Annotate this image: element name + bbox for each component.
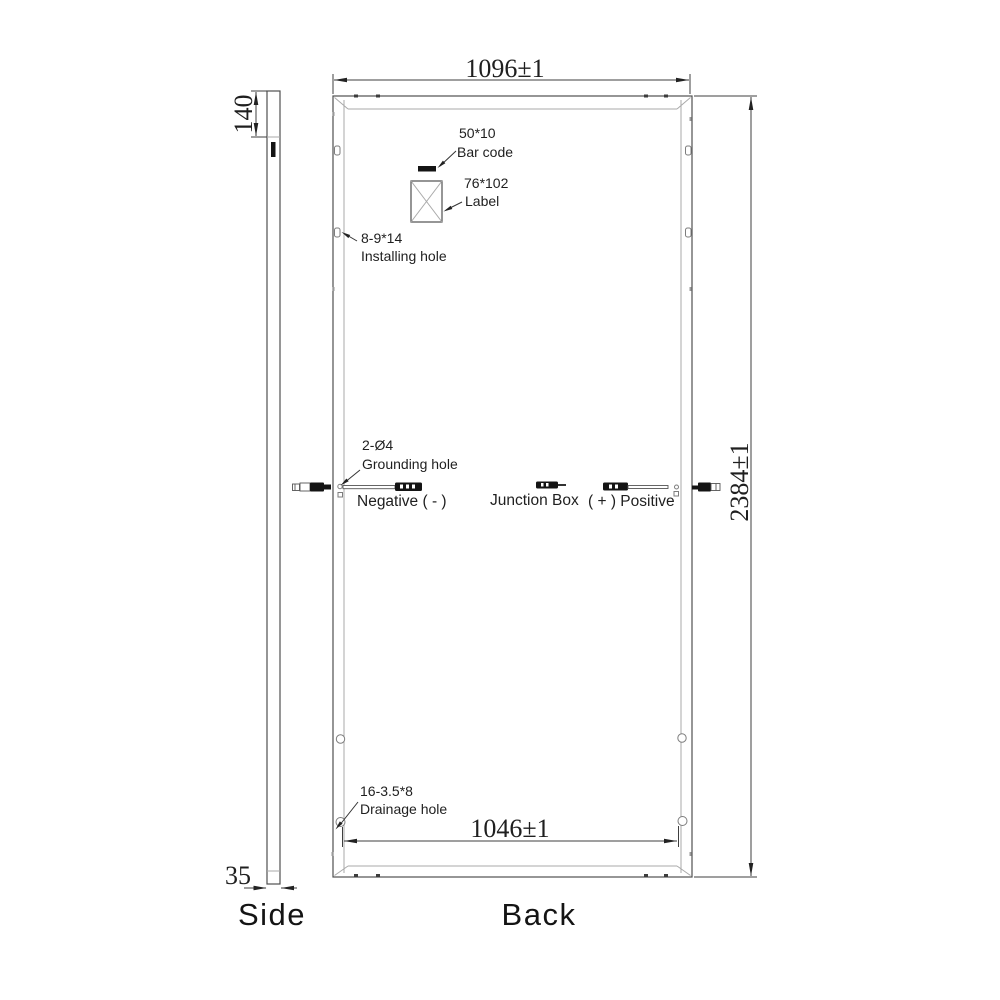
drainage-size-text: 16-3.5*8 — [360, 783, 413, 799]
grounding-hole-left — [338, 484, 343, 497]
mount-width-dimension: 1046±1 — [343, 814, 679, 847]
side-edge-tick-marks — [332, 112, 692, 856]
side-thickness-dimension: 35 — [225, 861, 297, 890]
label-size-text: 76*102 — [464, 175, 509, 191]
cable-connector-right — [603, 483, 628, 491]
height-dim-text: 2384±1 — [725, 442, 754, 521]
back-view: 1096±1 2384±1 1046±1 — [293, 54, 758, 932]
side-view-title: Side — [238, 897, 306, 932]
side-top-offset-dimension: 140 — [229, 91, 267, 137]
positive-label-text: ( + ) Positive — [588, 493, 675, 510]
negative-cable — [343, 486, 395, 489]
installing-size-text: 8-9*14 — [361, 230, 402, 246]
side-profile-bar — [267, 91, 280, 884]
cable-connector-left — [395, 483, 422, 492]
top-width-dimension: 1096±1 — [333, 54, 690, 94]
side-mounting-hole-mark — [271, 142, 276, 157]
grounding-size-text: 2-Ø4 — [362, 437, 393, 453]
negative-connector-icon — [293, 483, 332, 492]
side-view: 140 35 Side — [225, 91, 306, 932]
cable-connector-middle — [536, 482, 566, 489]
side-thickness-dim-text: 35 — [225, 861, 251, 890]
drainage-name-text: Drainage hole — [360, 801, 447, 817]
mount-width-dim-text: 1046±1 — [470, 814, 549, 843]
solar-panel-dimension-drawing: 140 35 Side — [0, 0, 1000, 1000]
barcode-size-text: 50*10 — [459, 125, 496, 141]
technical-drawing-page: 140 35 Side — [0, 0, 1000, 1000]
barcode-name-text: Bar code — [457, 144, 513, 160]
positive-cable — [628, 486, 668, 489]
back-view-title: Back — [502, 897, 577, 932]
positive-connector-icon — [692, 483, 720, 492]
installing-name-text: Installing hole — [361, 248, 447, 264]
negative-label-text: Negative ( - ) — [357, 493, 447, 510]
label-box — [411, 181, 442, 222]
grounding-hole-right — [674, 485, 679, 496]
label-name-text: Label — [465, 193, 499, 209]
grounding-name-text: Grounding hole — [362, 456, 458, 472]
top-width-dim-text: 1096±1 — [465, 54, 544, 83]
side-top-offset-dim-text: 140 — [229, 95, 258, 134]
junction-box-label-text: Junction Box — [490, 492, 579, 509]
barcode-mark — [418, 166, 436, 172]
